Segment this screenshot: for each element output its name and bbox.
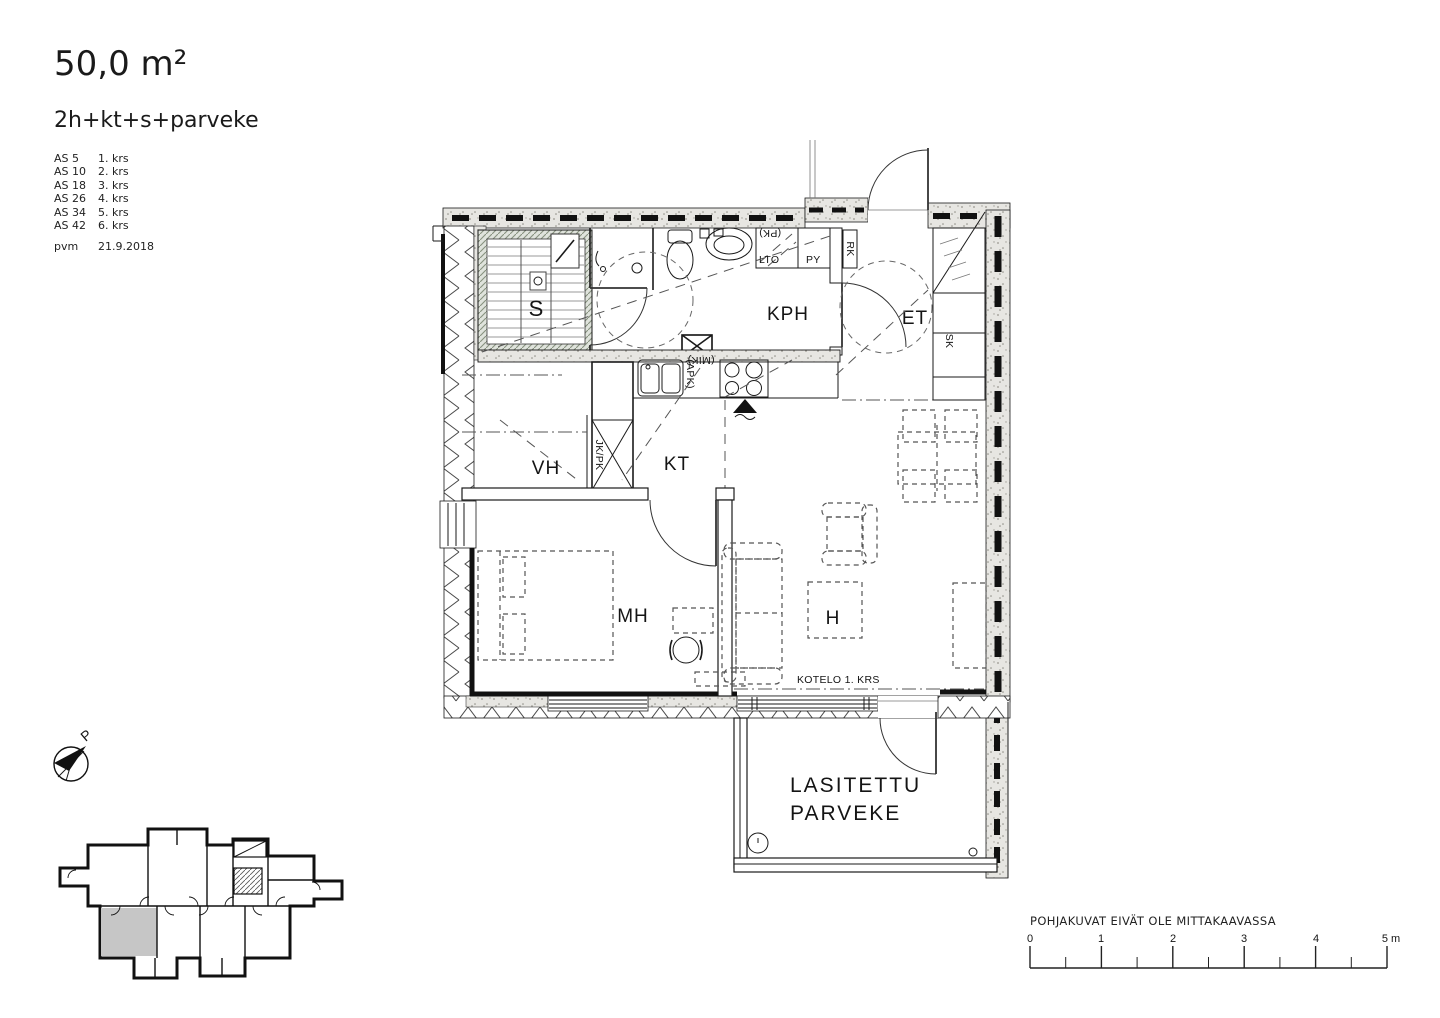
unit-floor: 4. krs: [98, 192, 129, 205]
north-label: P: [77, 726, 94, 744]
kitchen-sink: [638, 360, 683, 396]
label-pk: (PK): [759, 227, 781, 239]
bedroom-window-bottom: [548, 696, 648, 711]
balcony-label-line2: PARVEKE: [790, 802, 901, 825]
bed: [478, 551, 613, 660]
sauna-glass-door: [551, 234, 579, 268]
bathroom: (PK) LTO PY KPH: [590, 227, 835, 357]
bathroom-door: [590, 288, 647, 345]
dryer-space: PY: [798, 228, 835, 268]
scale-disclaimer: POHJAKUVAT EIVÄT OLE MITTAKAAVASSA: [1030, 914, 1276, 928]
label-mik: (MIK): [687, 354, 714, 366]
bedroom-door: [650, 500, 716, 566]
bedroom: MH: [478, 551, 713, 663]
desk: [673, 608, 713, 633]
room-label-kitchen: KT: [664, 454, 690, 475]
unit-id: AS 10: [54, 165, 98, 178]
date-row: pvm21.9.2018: [54, 240, 154, 253]
stove: [720, 360, 768, 397]
unit-id: AS 26: [54, 192, 98, 205]
bedroom-window-left: [440, 501, 476, 548]
scale-tick-0: 0: [1027, 933, 1033, 945]
date-value: 21.9.2018: [98, 240, 154, 253]
label-jkpk: JK/PK: [593, 440, 605, 471]
balcony-door: [880, 712, 936, 774]
washbasin: [700, 228, 752, 260]
living-room-window-bottom: [737, 696, 878, 711]
label-sk: SK: [943, 334, 955, 349]
entry-hall: RK SK ET: [830, 212, 985, 400]
scale-tick-1: 1: [1098, 933, 1104, 945]
label-rk: RK: [844, 241, 856, 256]
tv-bench: [953, 583, 986, 668]
floor-plan-page: { "header": { "area": "50,0 m²", "layout…: [0, 0, 1440, 1018]
scale-tick-5: 5 m: [1382, 933, 1400, 945]
compass: P: [54, 726, 95, 781]
room-label-closet: VH: [532, 458, 560, 479]
room-label-living: H: [826, 608, 841, 629]
unit-floor: 6. krs: [98, 219, 129, 232]
balcony-outlet-icon: [969, 848, 977, 856]
apartment-plan: S: [433, 140, 1010, 878]
unit-floor: 1. krs: [98, 152, 129, 165]
unit-floor: 3. krs: [98, 179, 129, 192]
balcony: LASITETTU PARVEKE: [734, 702, 1008, 878]
balcony-label-line1: LASITETTU: [790, 774, 921, 797]
shower-head-icon: [596, 251, 642, 273]
walk-in-closet: VH: [462, 375, 587, 482]
stair-core: [234, 841, 266, 894]
sauna-heater: [530, 272, 546, 290]
unit-id: AS 42: [54, 219, 98, 232]
sauna: S: [478, 230, 592, 352]
turning-circle-entry: [840, 261, 932, 353]
highlighted-unit: [101, 908, 157, 956]
scale-tick-2: 2: [1170, 933, 1176, 945]
floor-drain-icon: [748, 833, 768, 853]
turning-circle-bathroom: [597, 252, 693, 348]
label-py: PY: [806, 254, 821, 266]
dining-set: [898, 410, 977, 502]
room-label-bedroom: MH: [617, 606, 649, 627]
scale-tick-3: 3: [1241, 933, 1247, 945]
room-label-sauna: S: [529, 296, 544, 321]
duct-enclosure: KOTELO 1. KRS: [695, 672, 984, 689]
apartment-layout-type: 2h+kt+s+parveke: [54, 108, 259, 133]
room-label-bathroom: KPH: [767, 304, 809, 325]
bedroom-wall: [462, 488, 734, 696]
unit-id: AS 34: [54, 206, 98, 219]
unit-id: AS 18: [54, 179, 98, 192]
floor-plan-drawing: S: [0, 0, 1440, 1018]
chair: [670, 637, 702, 663]
date-label: pvm: [54, 240, 98, 253]
page-title-area: 50,0 m²: [54, 44, 187, 84]
fridge-cabinet: JK/PK: [592, 362, 633, 490]
unit-floor: 5. krs: [98, 206, 129, 219]
scale-tick-4: 4: [1313, 933, 1319, 945]
scale-bar: 0 1 2 3 4 5 m: [1027, 933, 1400, 968]
toilet: [667, 230, 693, 279]
extractor-icon: [733, 399, 757, 420]
unit-floor: 2. krs: [98, 165, 129, 178]
hall-closet: SK: [933, 212, 985, 400]
duct-note: KOTELO 1. KRS: [797, 674, 880, 686]
living-room: H KOTELO 1. KRS: [695, 410, 986, 689]
key-plan: [60, 829, 342, 978]
unit-id: AS 5: [54, 152, 98, 165]
unit-floor-list: AS 51. krs AS 102. krs AS 183. krs AS 26…: [54, 152, 129, 232]
label-lto: LTO: [759, 254, 779, 266]
heat-recovery-unit: (PK) LTO: [756, 227, 798, 268]
armchair: [822, 503, 877, 565]
electrical-cabinet: RK: [843, 230, 857, 268]
